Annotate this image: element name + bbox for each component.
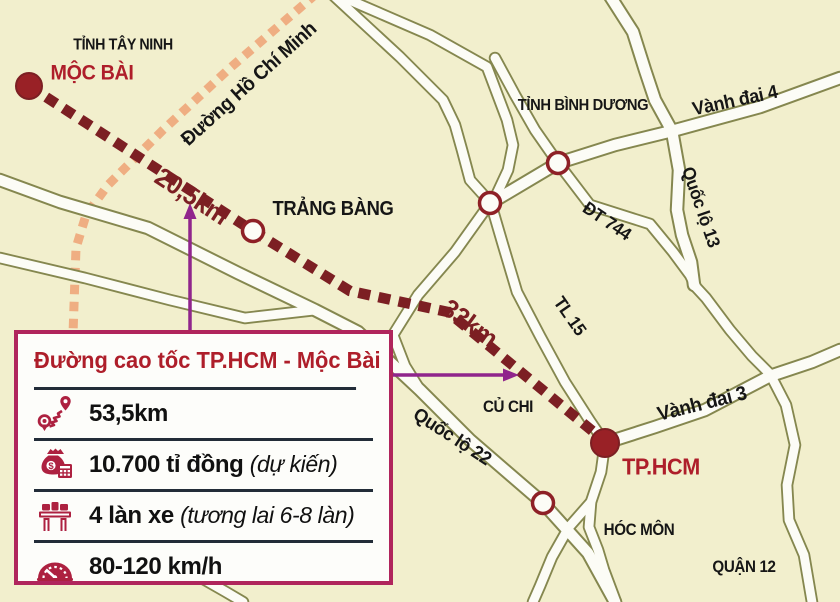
label-tp-hcm: TP.HCM xyxy=(622,456,700,479)
label-cu-chi: CỦ CHI xyxy=(483,399,533,416)
label-hoc-mon: HÓC MÔN xyxy=(604,522,675,539)
infobox-row-length: 53,5km xyxy=(34,390,373,438)
interchange-circle-trang-bang xyxy=(243,221,264,242)
expressway-map-infographic: TỈNH TÂY NINH MỘC BÀI Đường Hồ Chí Minh … xyxy=(0,0,840,602)
infobox-note-lanes: (tương lai 6-8 làn) xyxy=(180,502,354,528)
road-dt-744-south xyxy=(694,285,770,374)
road-quan-12 xyxy=(770,374,812,602)
expressway-infobox: Đường cao tốc TP.HCM - Mộc Bài 53,5km xyxy=(14,330,393,585)
svg-text:$: $ xyxy=(48,461,54,472)
label-tinh-tay-ninh: TỈNH TÂY NINH xyxy=(73,37,173,53)
infobox-row-speed: 80-120 km/h xyxy=(34,540,373,591)
infobox-value-investment: 10.700 tỉ đồng xyxy=(89,451,243,478)
label-trang-bang: TRẢNG BÀNG xyxy=(272,199,393,219)
speed-icon xyxy=(34,547,76,587)
label-moc-bai: MỘC BÀI xyxy=(51,63,134,84)
infobox-row-investment: $ 10.700 tỉ đồng (dự kiến) xyxy=(34,438,373,489)
route-length-icon xyxy=(34,394,76,434)
infobox-value-length: 53,5km xyxy=(89,400,168,427)
infobox-value-speed: 80-120 km/h xyxy=(89,553,222,580)
moc-bai-marker xyxy=(16,73,42,99)
infobox-value-lanes: 4 làn xe xyxy=(89,502,174,529)
lanes-icon xyxy=(34,496,76,536)
label-quan-12: QUẬN 12 xyxy=(712,559,775,576)
interchange-circle-junction xyxy=(480,193,501,214)
infobox-note-investment: (dự kiến) xyxy=(250,451,338,477)
tp-hcm-marker xyxy=(591,429,619,457)
infobox-title: Đường cao tốc TP.HCM - Mộc Bài xyxy=(34,334,356,390)
interchange-circle-vanh-dai-4 xyxy=(548,153,569,174)
infobox-row-lanes: 4 làn xe (tương lai 6-8 làn) xyxy=(34,489,373,540)
interchange-circle-quoc-lo-22 xyxy=(533,493,554,514)
label-tinh-binh-duong: TỈNH BÌNH DƯƠNG xyxy=(518,98,648,114)
investment-icon: $ xyxy=(34,445,76,485)
